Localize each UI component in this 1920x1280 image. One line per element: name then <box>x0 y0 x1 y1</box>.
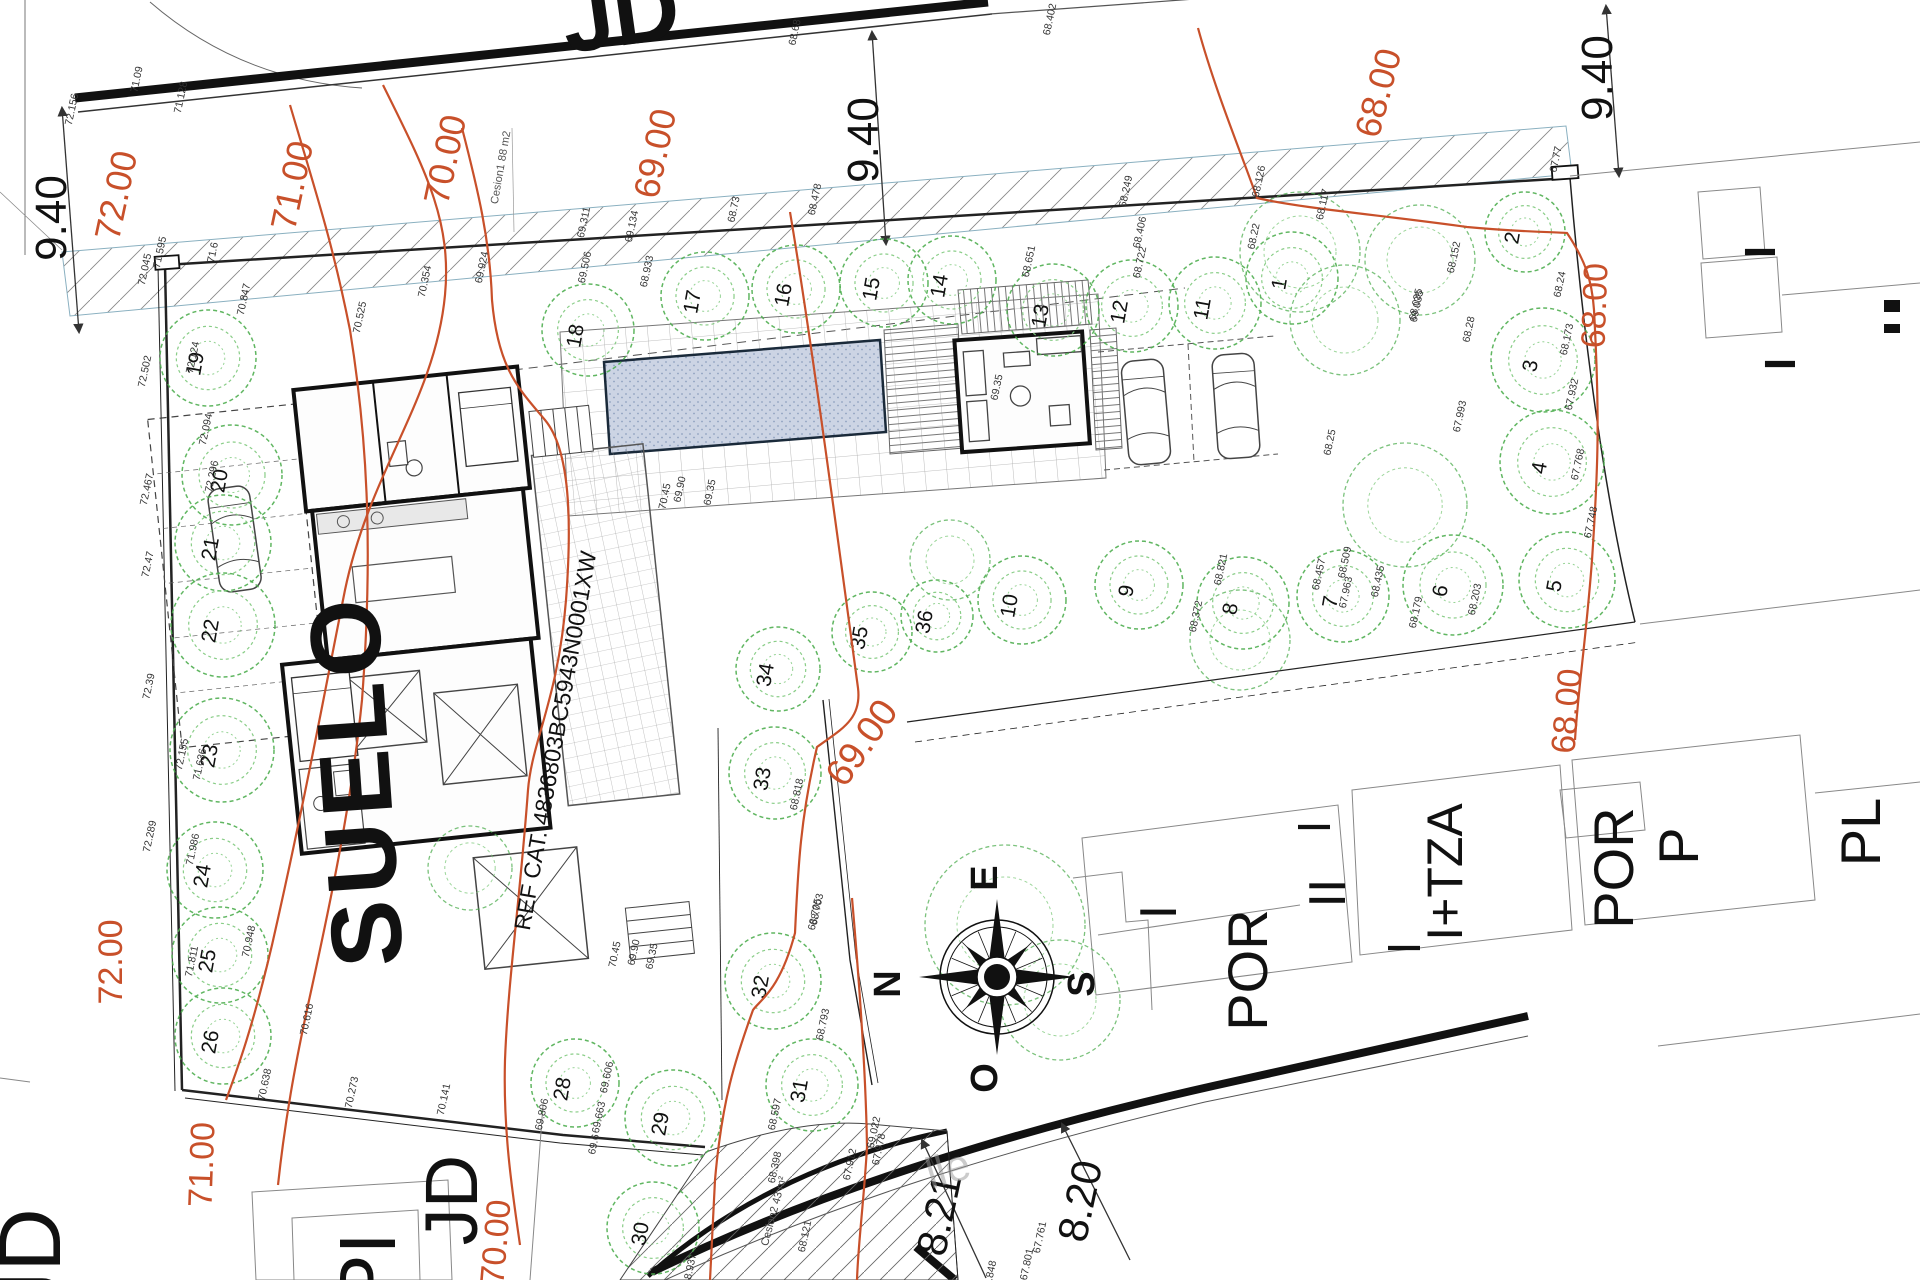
tree-number: 8 <box>1218 601 1243 617</box>
tree-mass <box>910 520 990 600</box>
annotation-label: I <box>1288 821 1340 834</box>
annotation-label: I <box>1756 358 1805 370</box>
spot-elevation: 67.761 <box>1031 1220 1049 1254</box>
annotation-label: JD <box>555 0 686 73</box>
spot-elevation: 72.467 <box>138 472 156 506</box>
tree-5: 5 <box>1519 532 1615 628</box>
tree-24: 24 <box>167 822 263 918</box>
tree-number: 31 <box>786 1077 813 1104</box>
tree-19: 19 <box>160 310 256 406</box>
tree-number: 4 <box>1527 460 1552 476</box>
spot-elevation: 70.273 <box>343 1075 361 1109</box>
tree-number: 22 <box>197 617 224 644</box>
tree-35: 35 <box>832 592 912 672</box>
tree-32: 32 <box>725 933 821 1029</box>
annotation-label: 8.20 <box>1048 1156 1111 1246</box>
spot-elevation: 71.986 <box>184 832 202 866</box>
annotation-label: JD <box>410 1155 493 1245</box>
annotation-label: Cesion1 88 m2 <box>489 130 514 205</box>
tree-number: 17 <box>679 288 706 315</box>
spot-elevation: 67.801 <box>1018 1247 1036 1280</box>
contour-label: 70.00 <box>415 111 474 208</box>
tree-number: 15 <box>858 275 885 302</box>
tree-11: 11 <box>1169 257 1261 349</box>
contour-label: 72.00 <box>92 919 130 1004</box>
tree-number: 36 <box>911 608 938 635</box>
tree-number: 30 <box>627 1220 654 1247</box>
road-top <box>75 2 988 98</box>
tree-number: 2 <box>1500 230 1525 246</box>
annotation-label: JD <box>0 1208 79 1280</box>
spot-elevation: 68.372 <box>1187 599 1205 633</box>
tree-mass <box>1290 265 1400 375</box>
tree-number: 34 <box>752 661 779 688</box>
spot-elevation: 68.28 <box>1460 315 1477 343</box>
tree-33: 33 <box>729 727 821 819</box>
tree-number: 12 <box>1106 298 1133 325</box>
contour-label: 68.00 <box>1346 44 1409 142</box>
pergola-slats-east <box>1090 328 1122 450</box>
site-plan-drawing: 1234567891011121314151617181920212223242… <box>0 0 1920 1280</box>
neighbor-mark <box>1884 300 1900 312</box>
tree-29: 29 <box>625 1070 721 1166</box>
tree-number: 14 <box>926 272 953 299</box>
spot-elevation: 69.90 <box>625 938 642 966</box>
tree-number: 13 <box>1027 302 1054 329</box>
tree-number: 1 <box>1267 276 1292 292</box>
annotation-label: I <box>1378 942 1430 955</box>
spot-elevation: 70.45 <box>606 940 623 968</box>
spot-elevation: 68.821 <box>1212 552 1230 586</box>
annotation-label: 9.40 <box>839 97 888 183</box>
contour-label: 69.00 <box>625 105 684 202</box>
tree-number: 21 <box>197 535 224 562</box>
spot-elevation: 69.806 <box>533 1097 551 1131</box>
contour-label: 72.00 <box>86 147 145 244</box>
spot-elevation: 68.25 <box>1321 428 1338 456</box>
spot-elevation: 67.932 <box>1563 377 1581 411</box>
spot-elevation: 68.818 <box>788 777 806 811</box>
spot-elevation: 68.22 <box>1245 222 1262 250</box>
tree-mass <box>1343 443 1467 567</box>
bed <box>459 387 518 466</box>
annotation-label: I+TZA <box>1417 803 1473 941</box>
spot-elevation: 70.638 <box>256 1067 274 1101</box>
spot-elevation: 68.203 <box>1466 582 1484 616</box>
pergola-slats-north <box>958 280 1092 334</box>
spot-elevation: 70.616 <box>298 1002 316 1036</box>
parked-car <box>1121 358 1172 465</box>
spot-elevation: 70.525 <box>351 300 369 334</box>
annotation-label: PL <box>1829 798 1892 867</box>
tree-number: 32 <box>747 973 774 1000</box>
neighbor-mark <box>1884 324 1900 333</box>
spot-elevation: 72.289 <box>141 819 159 853</box>
spot-elevation: 68.402 <box>1041 2 1059 36</box>
tree-number: 18 <box>562 322 589 349</box>
spot-elevation: 68.179 <box>1407 595 1425 629</box>
tree-number: 10 <box>996 592 1023 619</box>
annotation-label: POR <box>1582 807 1645 928</box>
tree-36: 36 <box>901 580 973 652</box>
annotation-label: II <box>1299 879 1357 908</box>
tree-34: 34 <box>736 627 820 711</box>
compass-letter-E: E <box>964 865 1006 890</box>
spot-elevation: 67.848 <box>981 1259 999 1280</box>
compass-letter-S: S <box>1061 971 1103 996</box>
spot-elevation: 68.24 <box>1551 270 1568 298</box>
spot-elevation: 72.156 <box>63 92 81 126</box>
tree-number: 16 <box>770 281 797 308</box>
compass-letter-N: N <box>867 970 909 997</box>
tree-number: 9 <box>1114 583 1139 599</box>
tree-number: 33 <box>749 765 776 792</box>
spot-elevation: 72.39 <box>140 672 157 700</box>
spot-elevation: 72.47 <box>139 550 156 578</box>
compass-letter-O: O <box>964 1063 1006 1093</box>
contour-label: 71.00 <box>262 137 321 234</box>
spot-elevation: 68.435 <box>1369 564 1387 598</box>
tree-number: 11 <box>1189 296 1215 321</box>
spot-elevation: 68.406 <box>1131 215 1149 249</box>
spot-elevation: 70.141 <box>435 1082 453 1116</box>
spot-elevation: 67.748 <box>1582 505 1600 539</box>
spot-elevation: 68.793 <box>814 1007 832 1041</box>
annotation-label: I <box>1736 246 1785 258</box>
spot-elevation: 69.035 <box>1408 289 1426 323</box>
annotation-label: PI <box>323 1232 412 1280</box>
spot-elevation: 72.094 <box>197 412 215 446</box>
spot-elevation: 68.152 <box>1445 240 1463 274</box>
driveway-hatch <box>620 1123 958 1280</box>
contour-label: 71.00 <box>182 1121 223 1207</box>
spot-elevation: 68.651 <box>1020 244 1038 278</box>
contour-label: 68.00 <box>1544 667 1589 755</box>
spot-elevation: 69.606 <box>598 1060 616 1094</box>
spot-elevation: 67.993 <box>1451 399 1469 433</box>
tree-number: 28 <box>549 1075 576 1102</box>
parked-car <box>1211 353 1260 460</box>
contour-label: 69.00 <box>818 692 907 794</box>
annotation-label: P <box>1647 827 1710 864</box>
garden-pavilion <box>954 332 1090 453</box>
tree-mass <box>428 826 512 910</box>
spot-elevation: 68.173 <box>1558 322 1576 356</box>
annotation-label: 9.40 <box>1573 35 1622 121</box>
tree-number: 6 <box>1428 583 1453 599</box>
spot-elevation: 67.768 <box>1569 447 1587 481</box>
tree-4: 4 <box>1500 410 1604 514</box>
compass-rose: ENSO <box>867 865 1103 1092</box>
tree-number: 26 <box>197 1028 224 1055</box>
tree-9: 9 <box>1095 541 1183 629</box>
tree-number: 29 <box>647 1110 674 1137</box>
annotation-label: POR <box>1216 909 1279 1030</box>
annotation-label: 9.40 <box>27 175 76 261</box>
deck-steps <box>884 324 964 454</box>
annotation-label: I <box>1130 905 1188 919</box>
road-top-edge2 <box>990 0 1345 14</box>
tree-number: 3 <box>1518 358 1543 374</box>
tree-mass <box>1240 192 1360 312</box>
tree-number: 5 <box>1542 578 1567 594</box>
contour-label: 68.00 <box>1575 262 1616 348</box>
spot-elevation: 70.948 <box>240 924 258 958</box>
house-plan <box>146 354 696 1004</box>
spot-elevation: 72.502 <box>136 354 154 388</box>
tree-10: 10 <box>978 556 1066 644</box>
